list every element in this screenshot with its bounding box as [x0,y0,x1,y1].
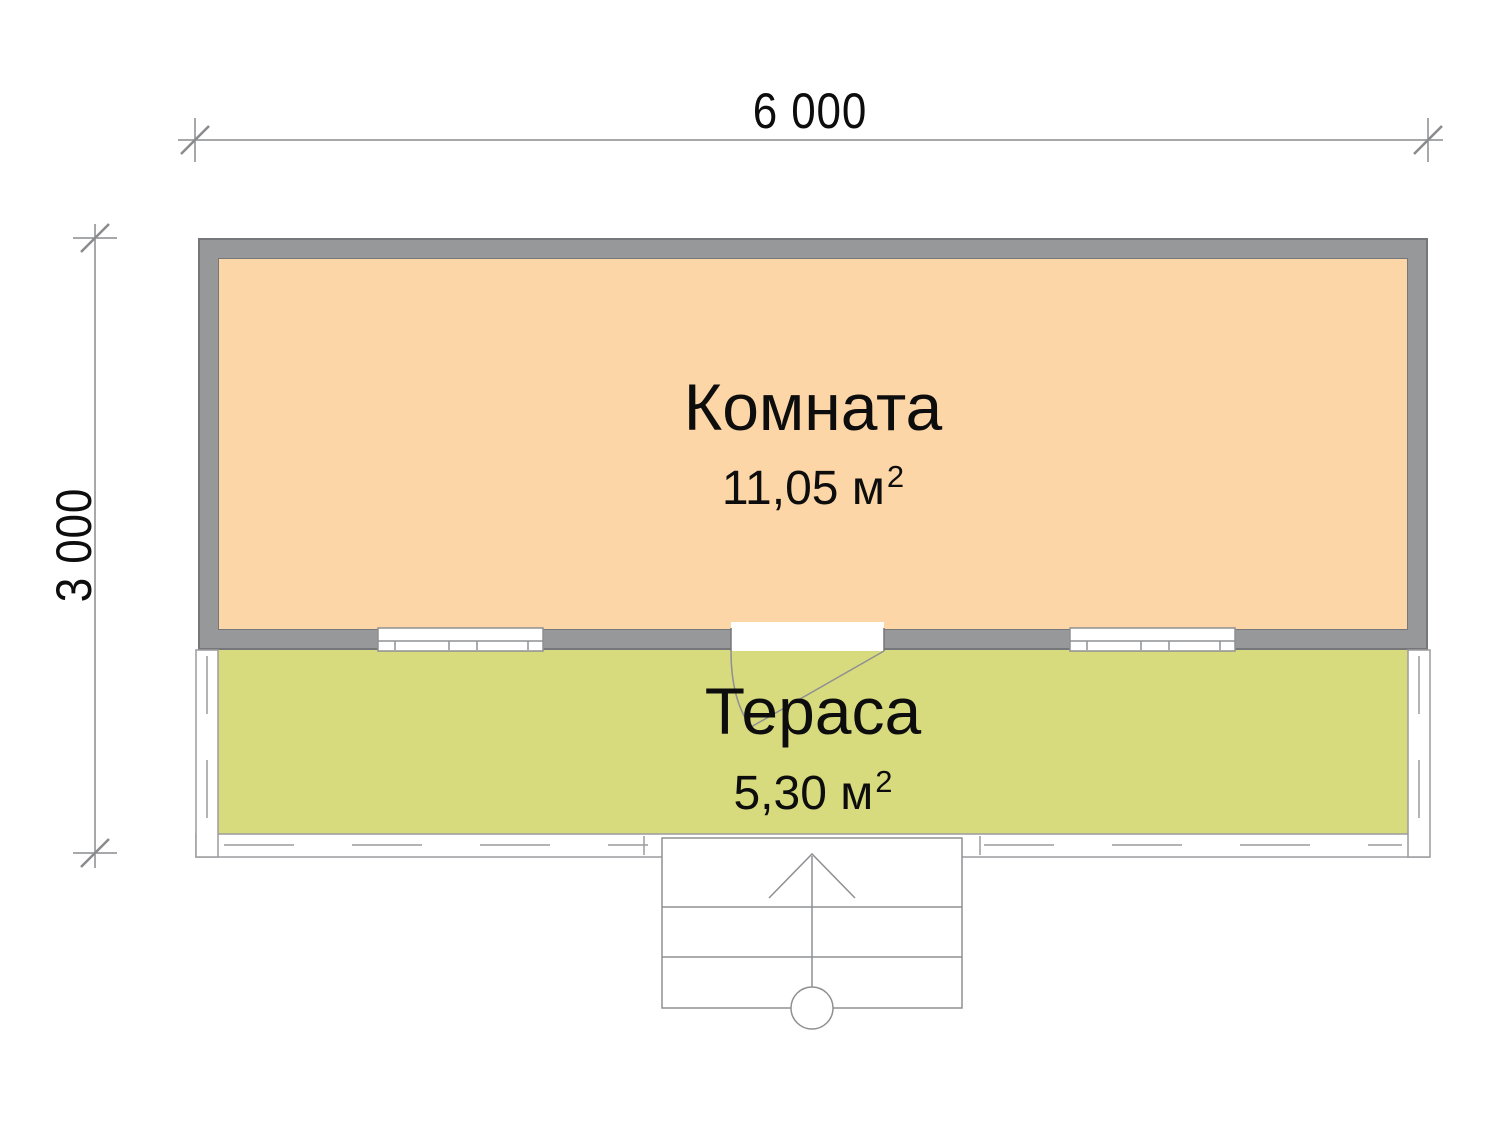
dimension-width-label: 6 000 [678,82,942,140]
terrace-area-value: 5,30 м [733,767,873,820]
room-area-label: 11,05 м2 [218,461,1408,516]
terrace-area-sup: 2 [875,764,892,800]
window-frame [1070,628,1235,651]
terrace-name-label: Тераса [218,673,1408,749]
window-right [1070,628,1235,651]
floor-plan-canvas: 6 000 3 000 Комната 11,05 м2 Тераса 5,30… [0,0,1500,1125]
door-opening [731,622,884,651]
terrace-area-label: 5,30 м2 [218,766,1408,821]
plan-linework [0,0,1500,1125]
window-left [378,628,543,651]
room-name-label: Комната [218,369,1408,445]
window-frame [378,628,543,651]
entrance-steps [662,838,962,1029]
stair-start-circle [791,987,833,1029]
room-area-value: 11,05 м [722,462,885,515]
dimension-height-label: 3 000 [45,413,99,677]
room-area-sup: 2 [887,459,904,495]
